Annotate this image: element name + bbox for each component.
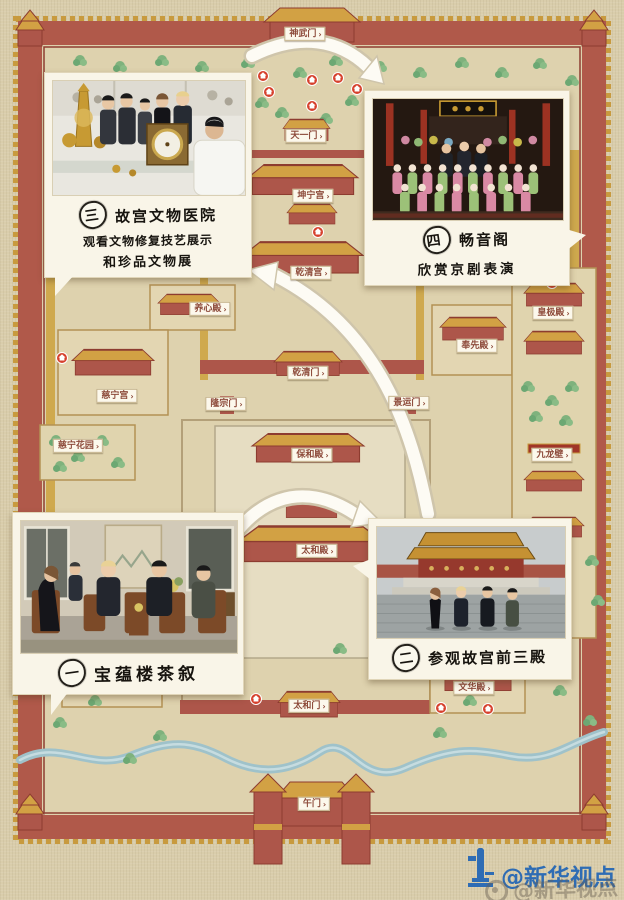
stop-4-line2: 欣赏京剧表演 (372, 256, 562, 279)
speech-tail (353, 559, 371, 580)
map-label-longzongmen: 隆宗门› (205, 397, 246, 411)
map-label-wenhuadian: 文华殿› (453, 681, 494, 695)
map-label-cining-garden: 慈宁花园› (53, 439, 103, 453)
map-label-huangjidian: 皇极殿› (532, 306, 573, 320)
photo-peking-opera (372, 98, 564, 221)
chevron-icon: › (223, 304, 226, 313)
chevron-icon: › (487, 683, 490, 692)
map-label-shenwumen: 神武门› (284, 27, 325, 41)
stop-1-title: 宝蕴楼茶叙 (93, 659, 198, 686)
chevron-icon: › (565, 450, 568, 459)
chevron-icon: › (321, 368, 324, 377)
chevron-icon: › (322, 701, 325, 710)
stop-number-badge: 四 (422, 224, 454, 256)
chevron-icon: › (324, 268, 327, 277)
chevron-icon: › (330, 546, 333, 555)
stop-4-title: 畅音阁 (459, 229, 510, 251)
chevron-icon: › (325, 450, 328, 459)
chevron-icon: › (422, 398, 425, 407)
weibo-eye-icon (485, 879, 509, 900)
meridian-gate (250, 774, 374, 864)
stop-1-card: 一 宝蕴楼茶叙 (12, 512, 244, 695)
map-label-wumen: 午门› (298, 797, 330, 811)
map-label-taihemen: 太和门› (288, 699, 329, 713)
map-label-cininggong: 慈宁宫› (96, 389, 137, 403)
corner-tower-icon (16, 10, 44, 46)
stop-3-line3: 和珍品文物展 (52, 250, 244, 272)
map-label-jingyunmen: 景运门› (388, 396, 429, 410)
map-label-qianqinggong: 乾清宫› (290, 266, 331, 280)
stop-3-line2: 观看文物修复技艺展示 (52, 231, 244, 251)
speech-tail (566, 229, 586, 251)
ghost-watermark: @新华视点 (485, 872, 619, 900)
chevron-icon: › (326, 191, 329, 200)
stop-number-badge: 三 (77, 200, 109, 232)
map-label-qianqingmen: 乾清门› (287, 366, 328, 380)
map-label-jiulongbi: 九龙壁› (531, 448, 572, 462)
stop-number-badge: 一 (56, 657, 88, 689)
map-label-tianyimen: 天一门› (285, 129, 326, 143)
forbidden-city-route-poster: 神武门› 天一门› 坤宁宫› 乾清宫› 养心殿› 皇极殿› 奉先殿› 乾清门› … (0, 0, 624, 900)
chevron-icon: › (96, 441, 99, 450)
stop-3-title: 故宫文物医院 (115, 204, 217, 227)
stop-number-badge: 二 (391, 642, 423, 674)
map-label-yangxindian: 养心殿› (189, 302, 230, 316)
chevron-icon: › (323, 799, 326, 808)
photo-conservation-hospital (52, 80, 246, 196)
map-label-fengxiandian: 奉先殿› (456, 339, 497, 353)
stop-4-card: 四 畅音阁 欣赏京剧表演 (364, 90, 570, 286)
map-label-taihedian: 太和殿› (296, 544, 337, 558)
east-corridor (570, 150, 579, 270)
speech-tail (51, 691, 69, 715)
photo-baoyun-tea-meeting (20, 520, 238, 654)
watermark: @新华视点 @新华视点 (463, 848, 616, 890)
chevron-icon: › (490, 341, 493, 350)
stop-3-card: 三 故宫文物医院 观看文物修复技艺展示 和珍品文物展 (44, 72, 252, 278)
chevron-icon: › (239, 399, 242, 408)
speech-tail (55, 274, 75, 296)
stop-2-card: 二 参观故宫前三殿 (368, 518, 572, 680)
photo-three-great-halls (376, 526, 566, 639)
chevron-icon: › (318, 29, 321, 38)
chevron-icon: › (566, 308, 569, 317)
stop-2-title: 参观故宫前三殿 (428, 646, 547, 669)
corner-tower-icon (580, 10, 608, 46)
chevron-icon: › (319, 131, 322, 140)
map-label-baohedian: 保和殿› (291, 448, 332, 462)
chevron-icon: › (130, 391, 133, 400)
map-label-kunninggong: 坤宁宫› (292, 189, 333, 203)
